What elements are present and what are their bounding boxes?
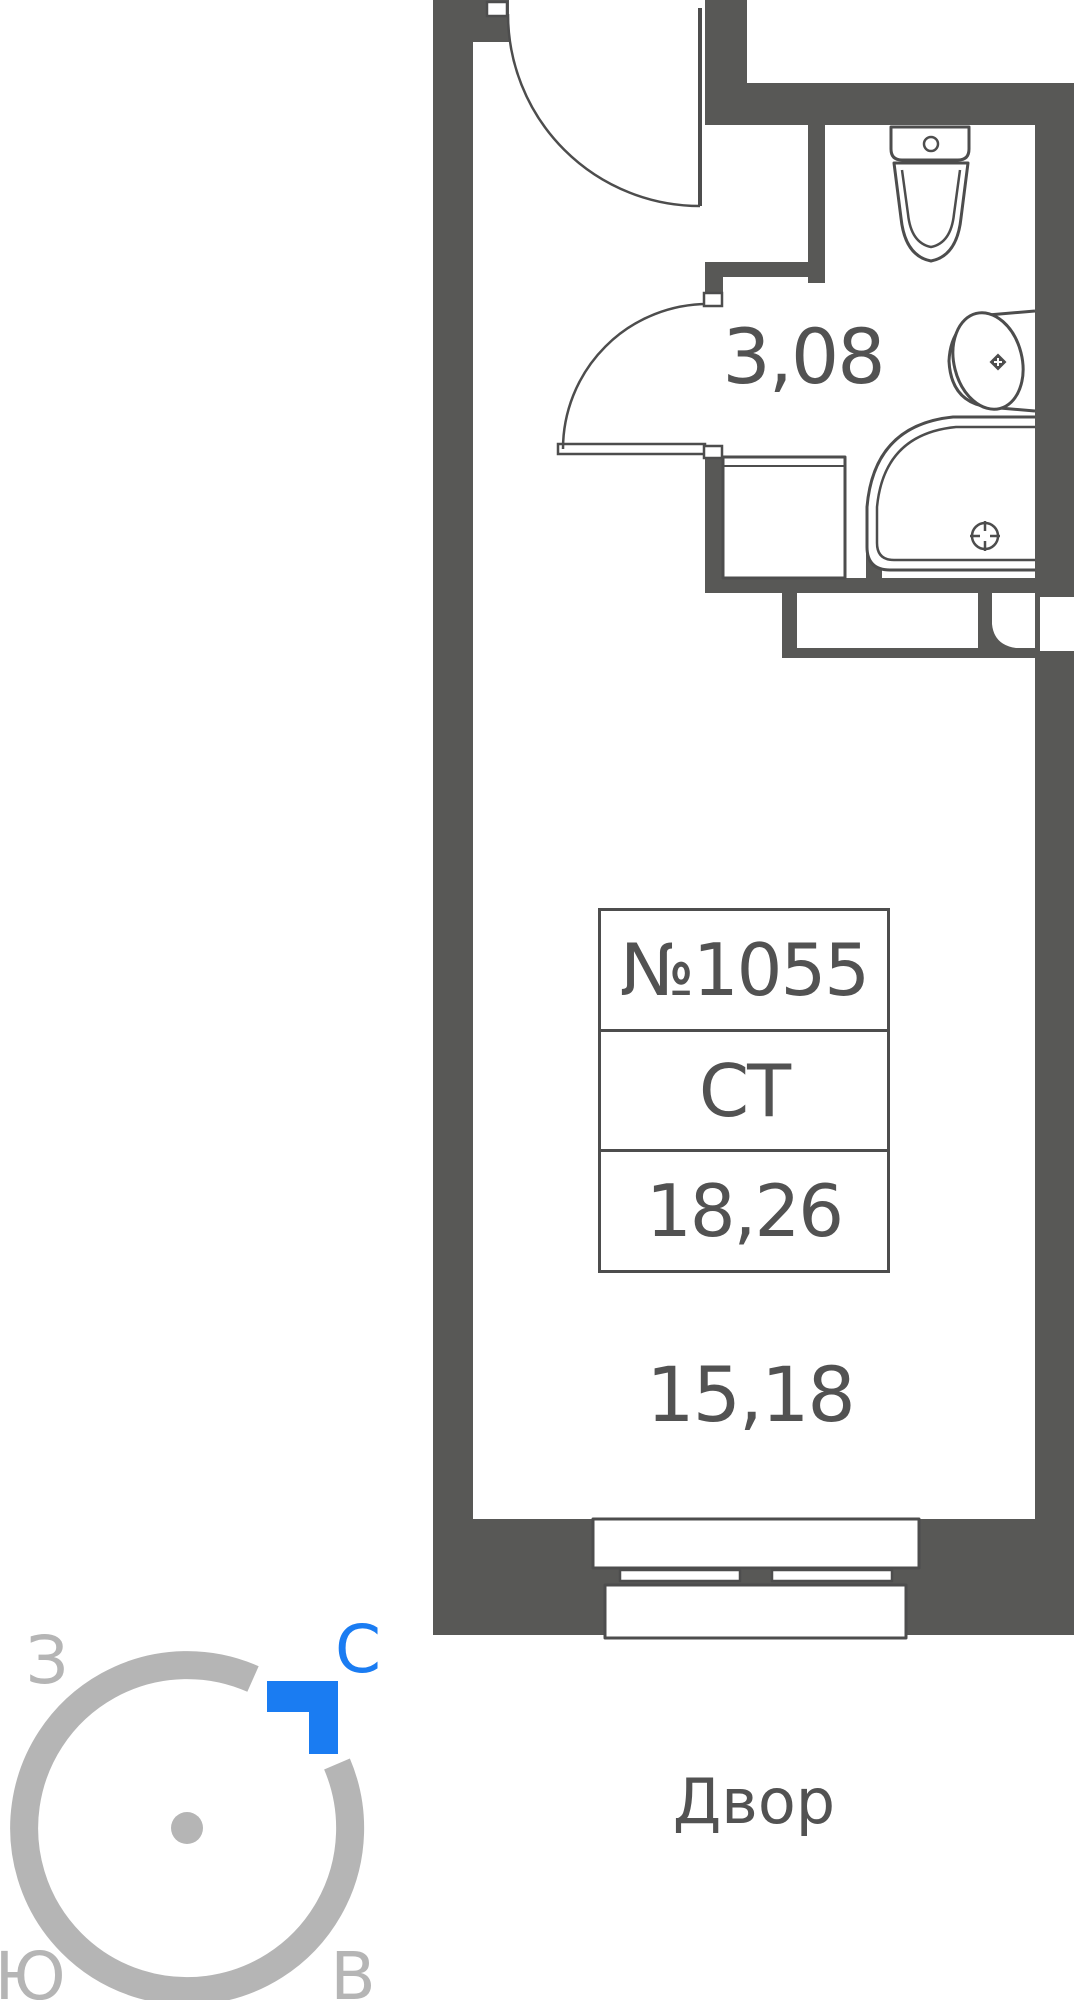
toilet-button <box>924 137 938 151</box>
compass-east-label: В <box>330 1944 375 2000</box>
bathroom-step-wall <box>705 262 825 277</box>
cabinet-outline <box>723 457 845 578</box>
floor-plan-page: 3,08 15,18 №1055 СТ 18,26 Двор З С Ю В <box>0 0 1074 2000</box>
cabinet-box <box>723 457 845 578</box>
entry-door-arc <box>508 14 700 206</box>
compass-south-label: Ю <box>0 1944 66 2000</box>
left-wall <box>433 0 473 1635</box>
entry-door-leaf <box>698 8 702 206</box>
unit-info-card: №1055 СТ 18,26 <box>598 908 890 1273</box>
window-glazing-right <box>772 1570 892 1581</box>
entry-door-hinge <box>487 2 507 16</box>
bathroom-divider-wall <box>808 125 825 283</box>
courtyard-label: Двор <box>673 1771 835 1833</box>
niche-corner <box>992 624 1016 648</box>
sink-icon <box>943 305 1035 417</box>
unit-number: №1055 <box>601 911 887 1029</box>
window-outer-sill <box>605 1585 906 1638</box>
compass-north-label: С <box>335 1617 381 1683</box>
bathroom-door <box>558 293 722 458</box>
right-wall-notch <box>1040 597 1074 651</box>
right-wall <box>1035 125 1074 1519</box>
window-inner-recess <box>593 1519 919 1568</box>
niche-bottom-bar <box>782 648 1035 658</box>
bathroom-door-hinge-upper <box>704 293 722 306</box>
shower-tray <box>867 417 1035 570</box>
top-wall-stub <box>705 0 747 125</box>
compass-west-label: З <box>26 1628 68 1694</box>
shower-icon <box>867 417 1035 570</box>
floor-plan-drawing <box>0 0 1074 2000</box>
north-arrow-icon <box>267 1681 338 1754</box>
unit-type: СТ <box>601 1029 887 1150</box>
bathroom-door-leaf <box>558 444 705 454</box>
unit-total-area: 18,26 <box>601 1149 887 1270</box>
main-room-area-label: 15,18 <box>646 1357 854 1433</box>
compass-center-dot <box>171 1812 203 1844</box>
bathroom-top-wall <box>747 83 1074 125</box>
bathroom-door-jamb-lower <box>705 453 723 593</box>
window-glazing-left <box>620 1570 740 1581</box>
compass <box>24 1665 350 1991</box>
bathroom-area-label: 3,08 <box>722 319 883 395</box>
entry-door <box>487 2 702 206</box>
bathroom-door-arc <box>563 304 708 449</box>
toilet-icon <box>891 127 969 261</box>
niche-divider <box>978 593 992 648</box>
bathroom-door-hinge-lower <box>704 446 722 458</box>
bathroom-bottom-wall <box>705 578 1035 593</box>
